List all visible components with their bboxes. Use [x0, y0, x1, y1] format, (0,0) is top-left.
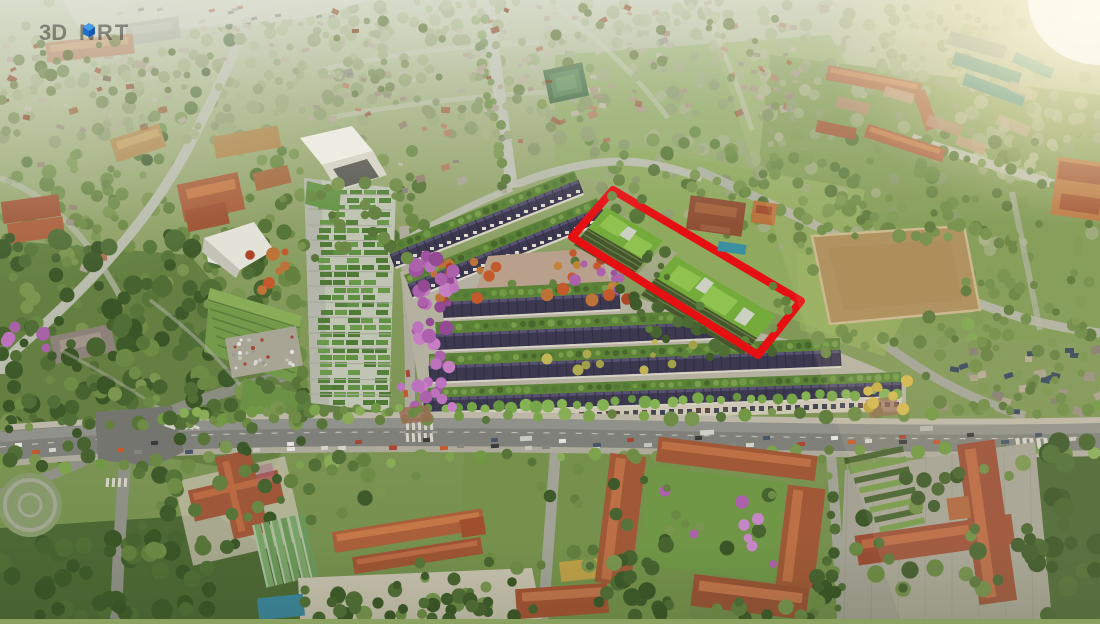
svg-text:3D: 3D: [39, 20, 67, 45]
